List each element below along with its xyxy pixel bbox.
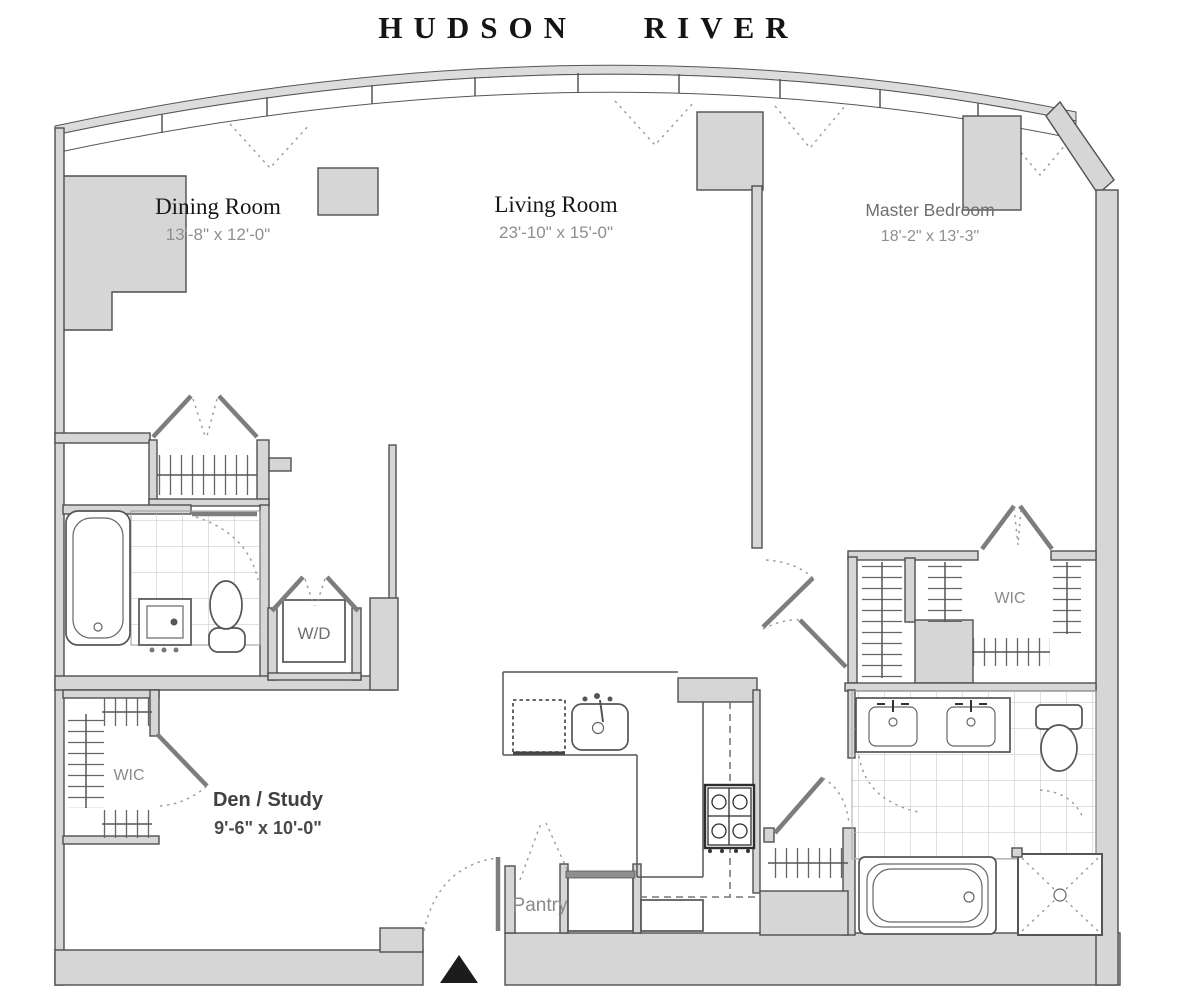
hallway — [763, 560, 849, 878]
dining-room-dims: 13'-8" x 12'-0" — [166, 225, 271, 244]
wic-east-label: WIC — [994, 590, 1025, 607]
living-room: Living Room 23'-10" x 15'-0" — [494, 192, 617, 242]
toilet — [209, 581, 245, 652]
pier-master — [963, 116, 1021, 210]
floor-plan: Dining Room 13'-8" x 12'-0" Living Room … — [0, 0, 1177, 1000]
closet-door-left — [153, 396, 191, 437]
master-hall-door — [763, 578, 813, 627]
corner-wall-northeast — [1046, 102, 1114, 194]
wic-west-door — [157, 734, 207, 786]
dishwasher — [566, 871, 635, 931]
south-wall-right — [505, 933, 1120, 985]
living-room-dims: 23'-10" x 15'-0" — [499, 223, 613, 242]
double-vanity — [856, 698, 1010, 752]
wic-east-door-left — [982, 506, 1014, 549]
pier-living-master — [697, 112, 763, 190]
base-cabinet — [641, 900, 703, 931]
washer-dryer-label: W/D — [297, 624, 330, 643]
dining-closet — [153, 396, 257, 495]
bathtub — [859, 857, 996, 934]
west-wall — [55, 128, 64, 985]
pier-dining-living — [318, 168, 378, 215]
floor-plan-page: HUDSON RIVER — [0, 0, 1177, 1000]
south-wall-step — [380, 928, 423, 952]
wic-east-door-right — [1020, 506, 1052, 549]
south-wall-left — [55, 950, 423, 985]
closet-door-right — [219, 396, 257, 437]
shower — [1012, 848, 1102, 935]
kitchen-sink — [572, 693, 628, 750]
vanity-sink — [139, 599, 191, 653]
dining-room-label: Dining Room — [155, 194, 281, 219]
den-dims: 9'-6" x 10'-0" — [214, 818, 322, 838]
wic-west-label: WIC — [113, 767, 144, 784]
cooktop — [705, 785, 754, 853]
laundry-closet: W/D — [272, 577, 358, 662]
bathroom-west — [66, 511, 260, 653]
entry-marker — [440, 955, 478, 983]
entry — [440, 955, 478, 983]
living-room-label: Living Room — [494, 192, 617, 217]
hall-kitchen-door — [800, 620, 846, 667]
refrigerator — [513, 700, 565, 753]
den-study: Den / Study 9'-6" x 10'-0" — [213, 789, 498, 931]
living-master-wall — [752, 186, 762, 548]
bathtub — [66, 511, 130, 645]
den-label: Den / Study — [213, 789, 324, 811]
master-bathroom — [852, 691, 1102, 935]
pantry-label: Pantry — [513, 895, 568, 916]
master-bedroom-label: Master Bedroom — [865, 200, 994, 220]
wic-west: WIC — [68, 698, 207, 838]
kitchen: Pantry — [503, 672, 760, 931]
master-bedroom: Master Bedroom 18'-2" x 13'-3" — [865, 200, 994, 245]
master-bath-door — [775, 778, 823, 833]
master-bedroom-dims: 18'-2" x 13'-3" — [881, 228, 979, 245]
